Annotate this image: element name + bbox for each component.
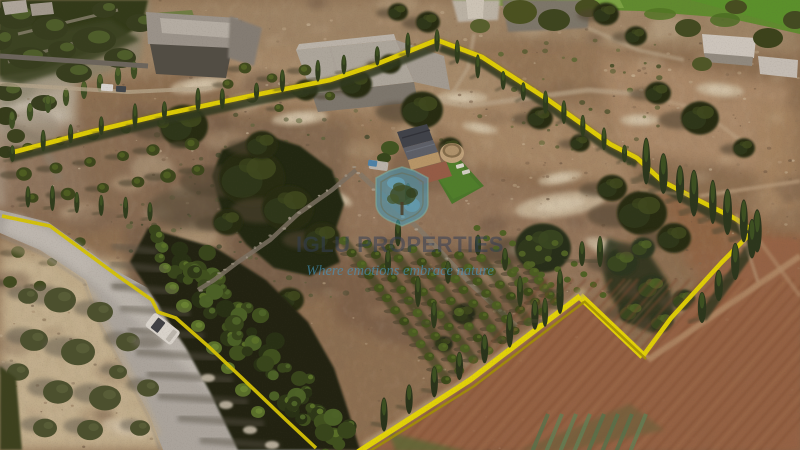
svg-text:IGLU PROPERTIES: IGLU PROPERTIES [296,232,504,257]
svg-text:Where emotions embrace nature: Where emotions embrace nature [306,263,494,279]
